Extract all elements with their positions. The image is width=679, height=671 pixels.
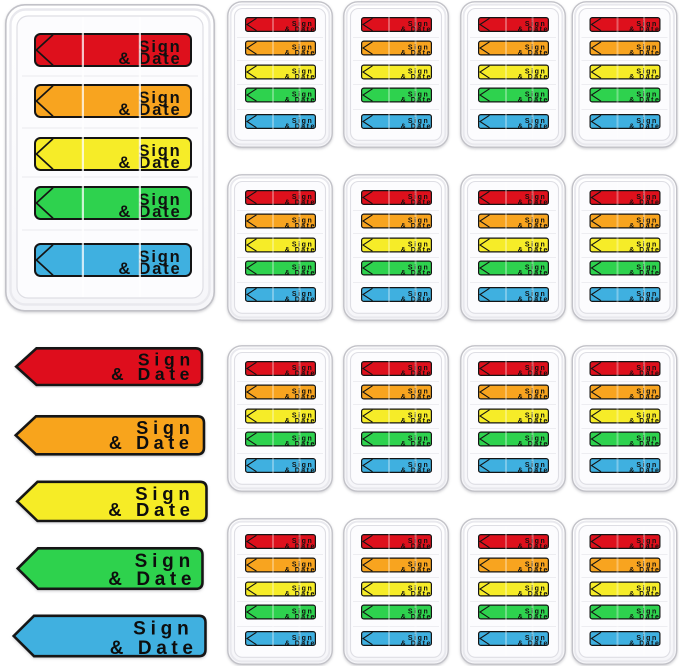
svg-text:& Date: & Date xyxy=(109,433,194,453)
svg-text:& Date: & Date xyxy=(111,364,194,384)
svg-text:& Date: & Date xyxy=(108,569,196,590)
svg-text:Sign: Sign xyxy=(133,619,193,640)
svg-text:& Date: & Date xyxy=(110,638,198,659)
svg-text:& Date: & Date xyxy=(108,499,194,520)
